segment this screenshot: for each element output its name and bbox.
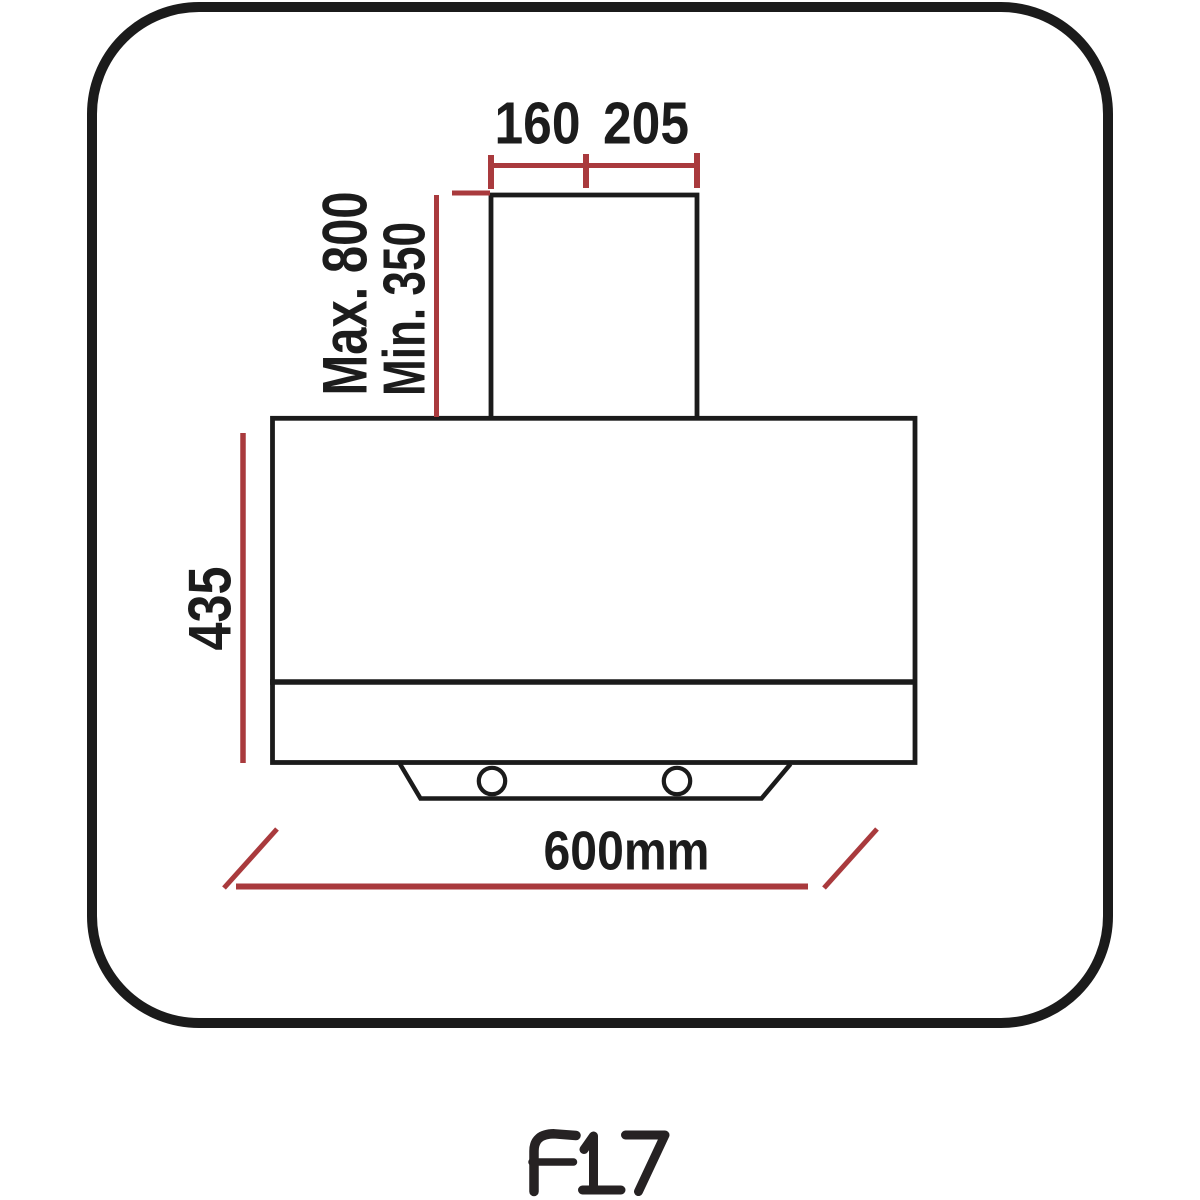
svg-text:205: 205 — [603, 91, 689, 157]
svg-text:Min. 350: Min. 350 — [372, 222, 438, 396]
svg-text:160: 160 — [495, 91, 581, 157]
svg-text:Max. 800: Max. 800 — [311, 192, 381, 396]
svg-text:600mm: 600mm — [544, 820, 710, 882]
svg-text:435: 435 — [177, 567, 244, 651]
